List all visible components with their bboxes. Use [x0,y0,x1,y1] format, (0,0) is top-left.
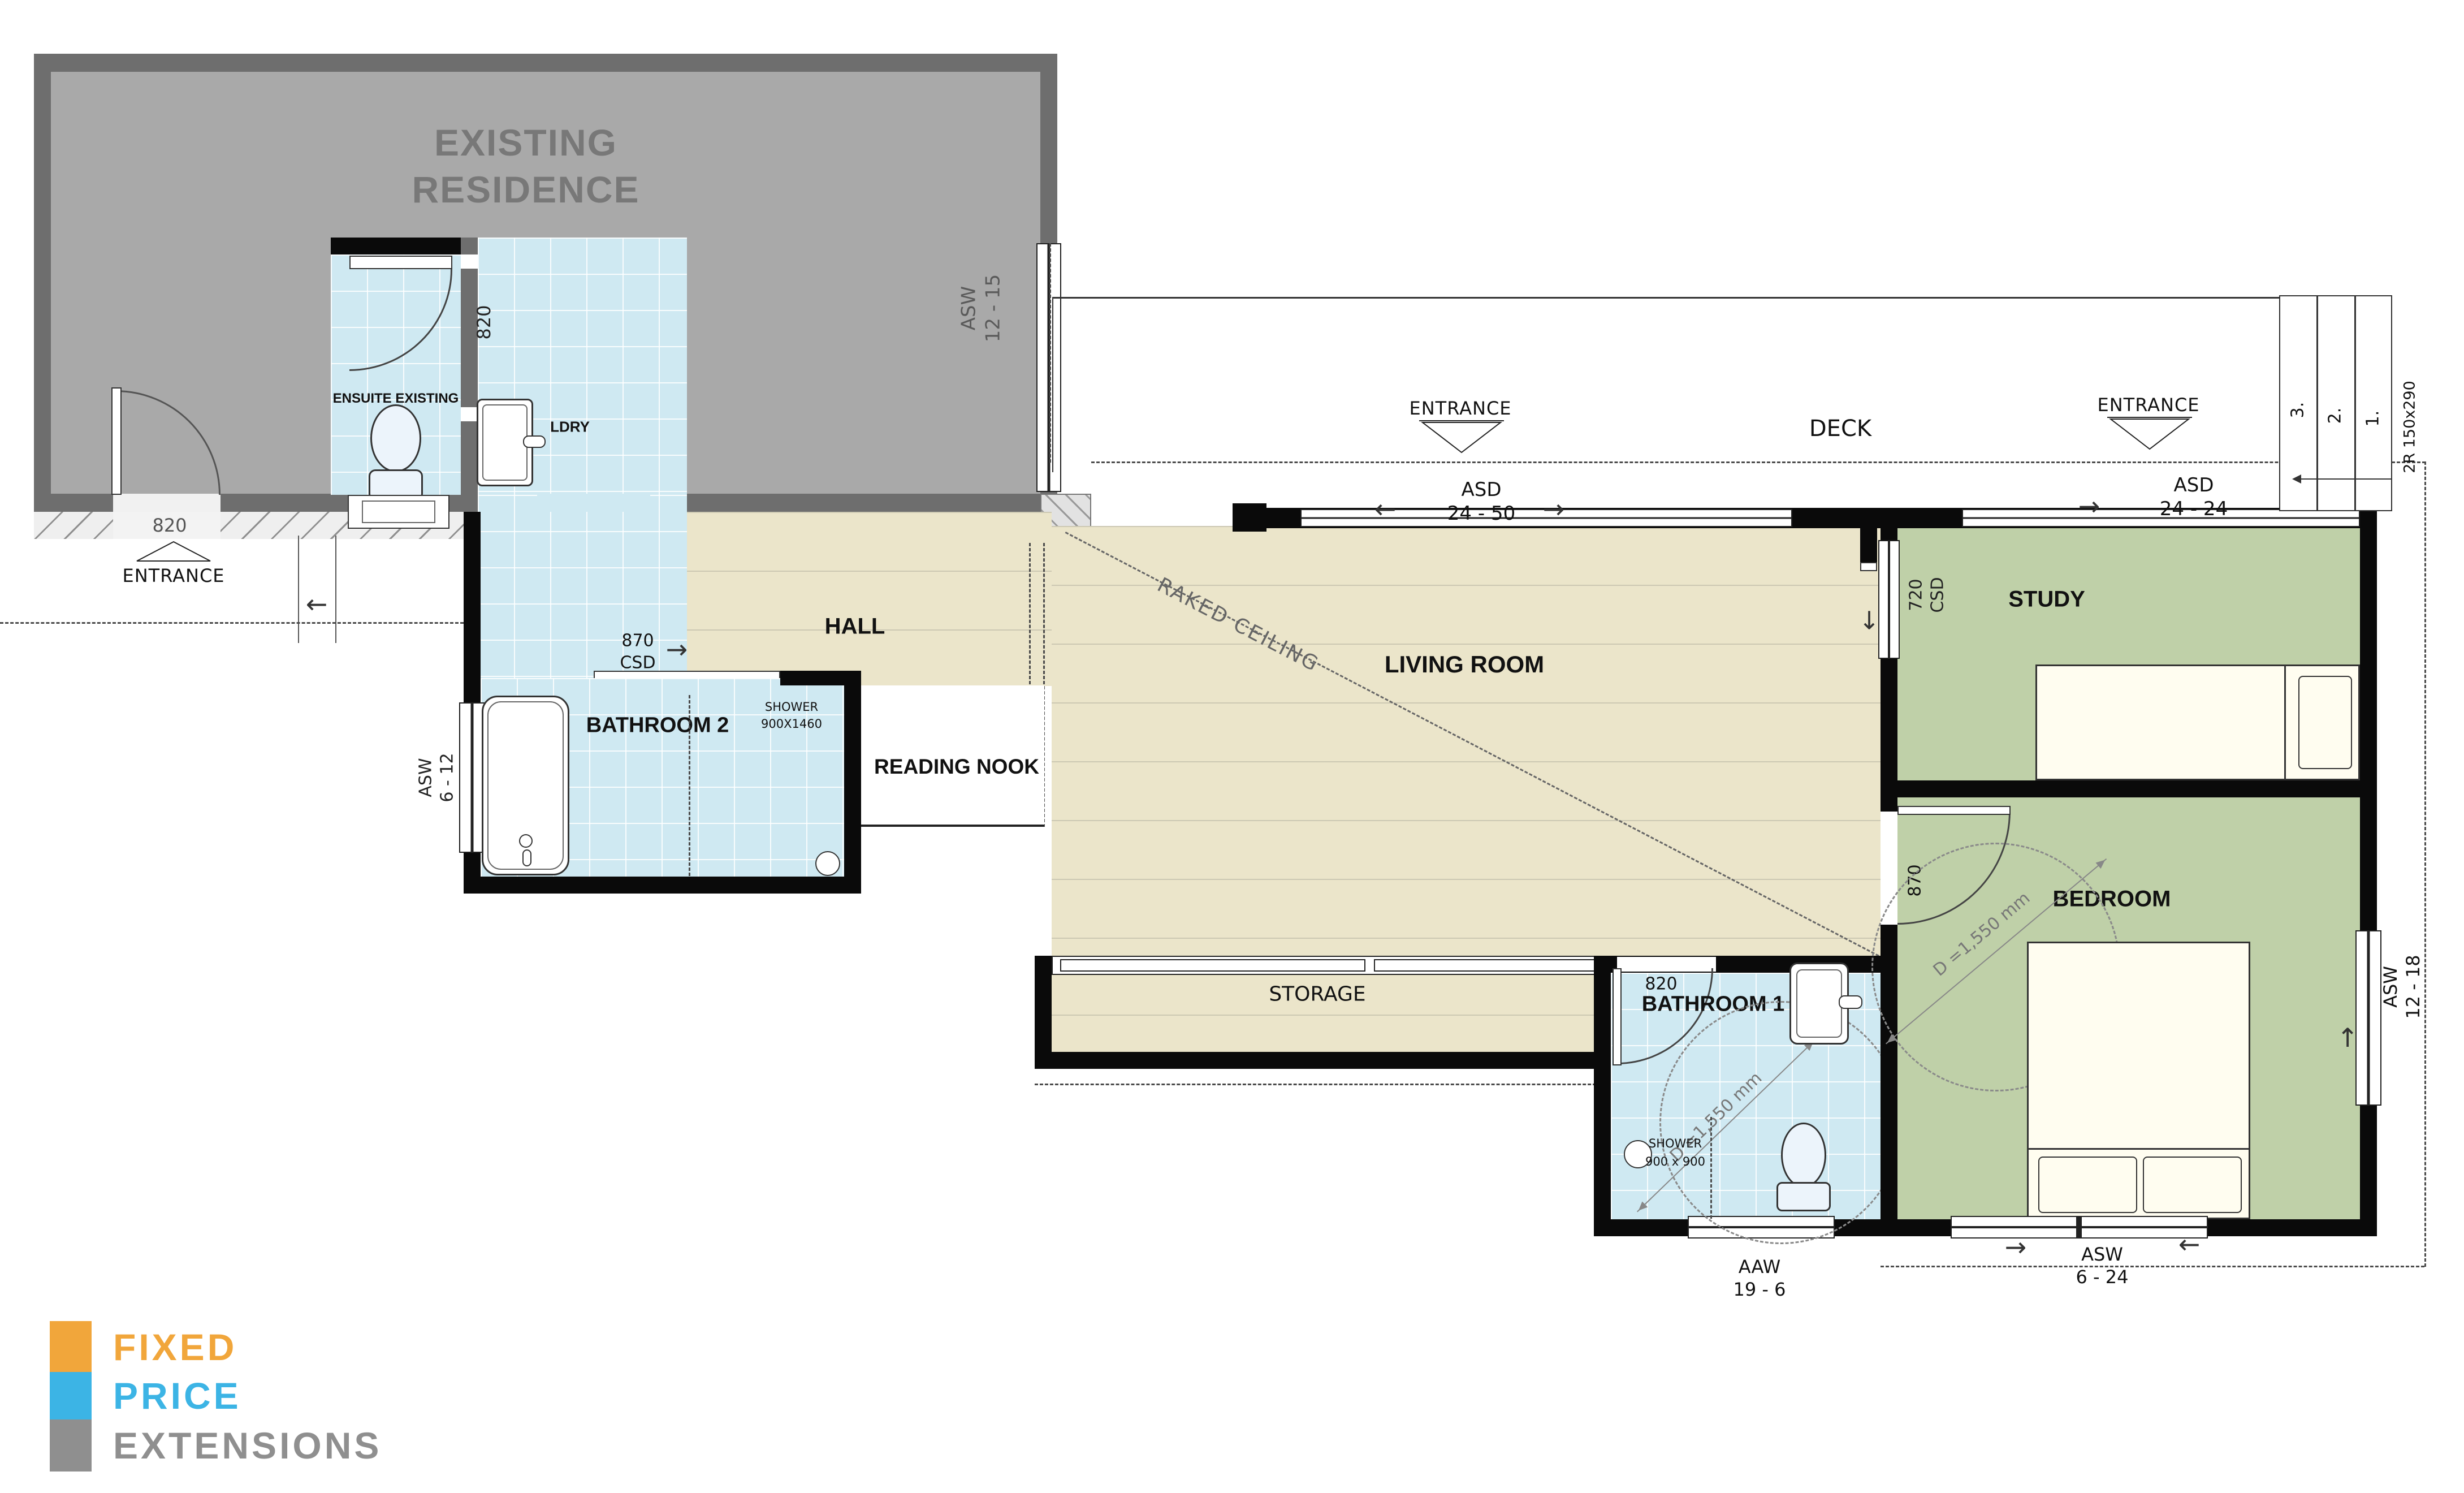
bathroom1-shower-1: SHOWER [1649,1137,1702,1150]
deck-top-edge [1052,297,2279,299]
bathroom2-wall-bottom [464,877,861,894]
logo-text-price: PRICE [113,1374,241,1417]
asw-12-18-line1: ASW [2379,955,2402,1019]
hall-label: HALL [825,614,885,640]
study-door-arrow: ↓ [1859,607,1880,636]
laundry-corridor-gap [537,494,650,512]
hall-floor [687,512,1052,686]
entrance-mid-marker [1419,420,1504,455]
bathtub-spout [522,849,531,866]
entrance-left-dim: 820 [152,515,187,536]
storage-overhang-dash [1035,1084,1611,1085]
floor-plan: EXISTING RESIDENCE 820 ENTRANCE ← ENSUIT… [0,0,2464,1493]
csd-720-label: 720 CSD [1906,577,1948,612]
overhang-dash-left [1049,243,1051,463]
asw-12-15-label: ASW 12 - 15 [957,274,1005,342]
csd-870-dim-1: 870 [621,631,654,651]
living-room-label: LIVING ROOM [1385,651,1544,678]
bathroom2-shower-rose [815,851,840,876]
existing-wall-left [34,54,51,512]
overhang-dash-top [1091,461,2426,463]
deck-step-1: 1. [2363,411,2383,427]
overhang-dash-bottom [1881,1266,2424,1267]
ensuite-door-jamb-1 [461,254,478,269]
ensuite-toilet-bowl [370,404,421,472]
bedroom-pillow-1 [2038,1157,2137,1213]
dim-arrow-left: ← [306,589,328,619]
entrance-mid-label: ENTRANCE [1409,398,1511,419]
aaw-19-6-label-2: 19 - 6 [1734,1279,1786,1300]
bathroom1-toilet-bowl [1781,1123,1826,1188]
existing-residence-title-2: RESIDENCE [412,168,639,211]
storage-wall-bottom [1035,1052,1611,1069]
asd-24-50-label-2: 24 - 50 [1447,502,1515,525]
aaw-19-6-label-1: AAW [1739,1256,1781,1278]
bathroom1-tap [1839,995,1862,1009]
asw-6-24-arrow-r: → [2005,1232,2027,1262]
asd-24-50-arrow-l: ← [1374,494,1397,524]
entrance-right-marker [2107,416,2192,451]
bathroom1-shower-screen [1710,1117,1712,1219]
deck-step-arrow-line [2297,478,2392,480]
asw-12-18-window [2355,930,2381,1106]
asw-6-24-post [2076,1216,2082,1239]
asw-6-12-line1: ASW [416,753,437,802]
bathroom1-door-dim: 820 [1645,974,1677,994]
bathroom1-wall-left [1594,973,1611,1236]
bathroom1-shower-2: 900 x 900 [1645,1155,1705,1168]
csd-720-line1: 720 [1906,577,1927,612]
bedroom-bed-fold [2027,1148,2250,1150]
existing-entrance-door-leaf [111,387,122,495]
asd-24-50-arrow-r: → [1543,494,1565,524]
asd-24-50-label-1: ASD [1461,478,1501,501]
bathroom2-shower-1: SHOWER [765,700,818,714]
reading-nook-label: READING NOOK [874,755,1039,779]
csd-720-opening [1878,540,1900,659]
ensuite-wall-top [331,238,478,254]
storage-door-panel-2 [1374,959,1606,972]
laundry-label: LDRY [550,418,590,436]
deck-label: DECK [1809,416,1871,442]
logo-square-orange [50,1321,92,1372]
asw-6-12-line2: 6 - 12 [436,753,458,802]
asw-6-24-arrow-l: ← [2178,1229,2201,1259]
entrance-left-marker [136,540,212,563]
asw-12-18-label: ASW 12 - 18 [2379,955,2424,1019]
bedroom-wall-top [1881,780,2377,797]
asd-24-24-label-1: ASD [2173,474,2214,497]
laundry-corridor [478,495,687,678]
overhang-dash-right [2424,461,2426,1267]
logo-text-extensions: EXTENSIONS [113,1424,382,1467]
deck-riser-label: 2R 150x290 [2401,381,2419,473]
bathroom1-basin [1796,969,1842,1038]
asw-12-18-line2: 12 - 18 [2402,955,2424,1019]
asd-24-24-arrow-r: → [2078,491,2100,521]
storage-door-panel-1 [1060,959,1365,972]
laundry-tub-inner [482,404,528,481]
ensuite-door-leaf [349,256,452,269]
asw-12-15-line2: 12 - 15 [981,274,1005,342]
asd-24-24-label-2: 24 - 24 [2160,498,2228,520]
deck-step-2: 2. [2325,408,2345,424]
entrance-left-label: ENTRANCE [122,565,224,586]
ensuite-door-dim: 820 [473,305,495,339]
existing-residence-title-1: EXISTING [434,121,617,164]
study-bed-pillow [2298,676,2352,769]
bathroom2-shower-2: 900X1460 [761,717,822,731]
bedroom-door-leaf [1897,806,2011,815]
logo-square-blue [50,1372,92,1419]
ensuite-vanity-basin [362,500,435,523]
living-corner-notch [1091,469,1233,526]
asw-6-24-label-1: ASW [2081,1244,2123,1265]
asw-12-15-line1: ASW [957,274,982,342]
csd-870-arrow: → [666,634,688,664]
asw-12-15-window [1036,243,1061,492]
wall-stub [1860,528,1877,562]
dim-line-b [335,536,336,643]
ensuite-wall-right [461,238,478,495]
site-dashed-left [0,622,464,624]
bathroom2-wall-right [844,671,861,894]
ensuite-door-jamb-2 [461,407,478,421]
bathroom1-door-leaf [1613,968,1622,1065]
existing-wall-bottom-right [687,494,1040,512]
deck-left-edge [1052,297,1053,472]
csd-870-dim-2: CSD [620,653,655,673]
asw-6-12-label: ASW 6 - 12 [416,753,458,802]
storage-label: STORAGE [1269,983,1365,1006]
asw-6-24-label-2: 6 - 24 [2076,1266,2129,1288]
deck-step-3: 3. [2288,402,2308,418]
study-bed-fold [2284,664,2286,780]
deck-step-arrow-head [2288,474,2301,484]
wall-stub-jamb [1860,562,1877,571]
logo-square-gray [50,1419,92,1472]
dim-line-a [298,536,299,643]
bathtub-tap [519,834,533,848]
nook-under-area [861,827,1052,956]
study-label: STUDY [2008,587,2085,612]
bedroom-pillow-2 [2143,1157,2242,1213]
bathroom2-shower-screen [689,695,690,876]
laundry-tap [523,435,546,448]
asw-12-18-arrow: ↑ [2337,1022,2359,1053]
logo-text-fixed: FIXED [113,1326,237,1369]
bathroom2-label: BATHROOM 2 [586,714,729,738]
nook-seat-line [861,825,1044,827]
bathroom1-toilet-tank [1776,1182,1831,1211]
csd-720-line2: CSD [1927,577,1948,612]
entrance-right-label: ENTRANCE [2097,394,2199,416]
existing-entrance-gap [113,494,221,512]
existing-wall-top [34,54,1057,72]
bedroom-wall-right [2360,528,2377,1236]
